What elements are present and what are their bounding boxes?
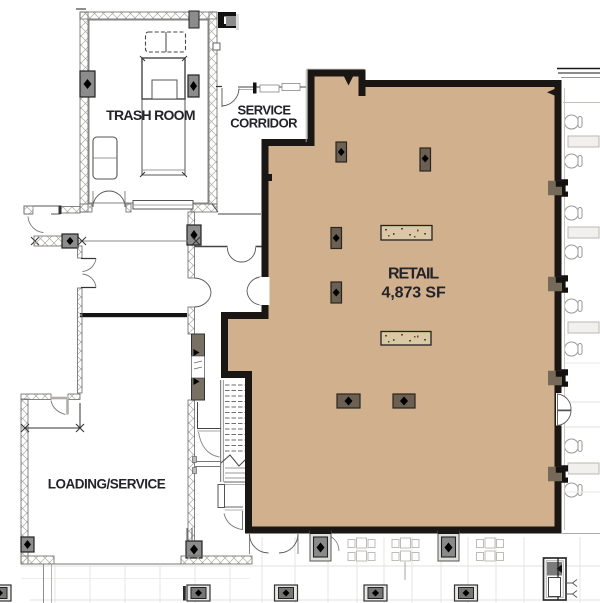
svg-text:LOADING/SERVICE: LOADING/SERVICE (48, 477, 166, 492)
svg-text:RETAIL: RETAIL (388, 266, 439, 283)
svg-text:TRASH ROOM: TRASH ROOM (106, 107, 195, 123)
svg-text:4,873 SF: 4,873 SF (382, 285, 446, 302)
svg-text:CORRIDOR: CORRIDOR (230, 115, 298, 130)
